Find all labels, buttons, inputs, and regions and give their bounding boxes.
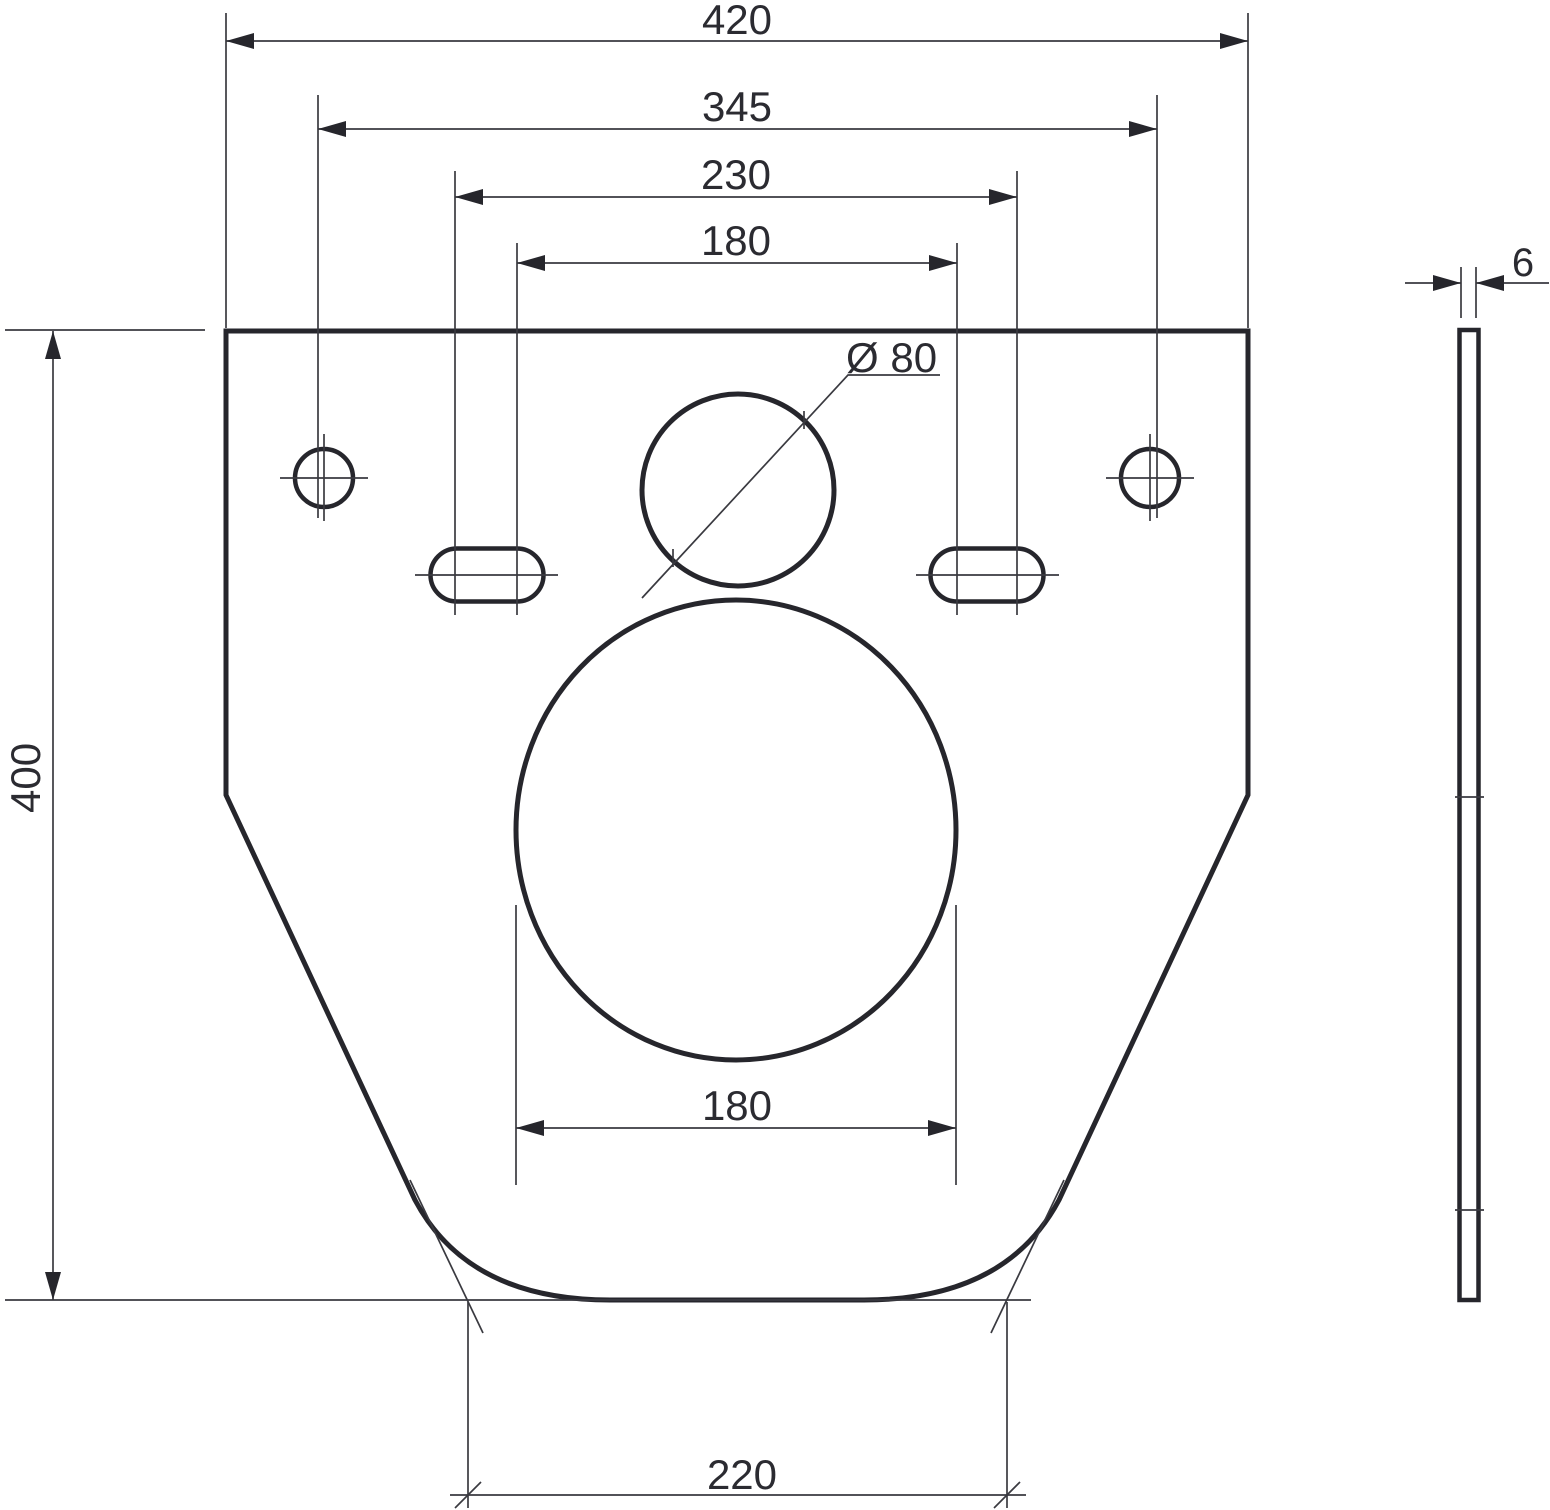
dim-label-420: 420 — [702, 0, 772, 43]
side-plate-outline — [1460, 330, 1479, 1300]
dim-label-180-top: 180 — [701, 217, 771, 264]
dim-label-230: 230 — [701, 151, 771, 198]
arrowhead-down-icon — [45, 1272, 61, 1300]
bolt-hole-left — [280, 434, 368, 521]
dimension-bolt-hole-spacing: 345 — [318, 83, 1157, 518]
arrowhead-right-icon — [929, 255, 957, 271]
arrowhead-left-icon — [1476, 275, 1504, 291]
dim-label-180-bottom: 180 — [702, 1082, 772, 1129]
dim-label-dia-80: Ø 80 — [846, 334, 937, 381]
plate-outline — [226, 331, 1248, 1300]
small-hole-circle — [642, 394, 834, 586]
dim-label-345: 345 — [702, 83, 772, 130]
dimension-bottom-width: 220 — [410, 1180, 1064, 1508]
construction-line-right — [991, 1180, 1064, 1333]
arrowhead-left-icon — [516, 1120, 544, 1136]
dim-label-400: 400 — [2, 743, 49, 813]
large-oval-cutout — [516, 600, 956, 1060]
dim-label-220: 220 — [707, 1451, 777, 1498]
arrowhead-up-icon — [45, 331, 61, 359]
arrowhead-right-icon — [989, 189, 1017, 205]
arrowhead-left-icon — [318, 121, 346, 137]
dimension-small-hole-diameter: Ø 80 — [642, 334, 940, 598]
slot-right — [916, 549, 1059, 602]
technical-drawing-sheet: 420 345 230 180 Ø 80 — [0, 0, 1550, 1510]
arrowhead-right-icon — [928, 1120, 956, 1136]
dim-label-6: 6 — [1512, 241, 1534, 285]
front-view — [226, 331, 1248, 1300]
arrowhead-left-icon — [455, 189, 483, 205]
arrowhead-right-icon — [1220, 33, 1248, 49]
arrowhead-left-icon — [226, 33, 254, 49]
slot-left — [415, 549, 558, 602]
dimension-plate-thickness: 6 — [1405, 241, 1549, 318]
side-view — [1455, 330, 1484, 1300]
dimension-large-hole-width: 180 — [516, 905, 956, 1185]
arrowhead-right-icon — [1433, 275, 1461, 291]
dimension-slot-spacing-inner: 180 — [517, 217, 957, 615]
bolt-hole-right — [1106, 434, 1194, 521]
arrowhead-left-icon — [517, 255, 545, 271]
arrowhead-right-icon — [1129, 121, 1157, 137]
drawing-canvas: 420 345 230 180 Ø 80 — [0, 0, 1550, 1510]
construction-line-left — [410, 1180, 483, 1333]
